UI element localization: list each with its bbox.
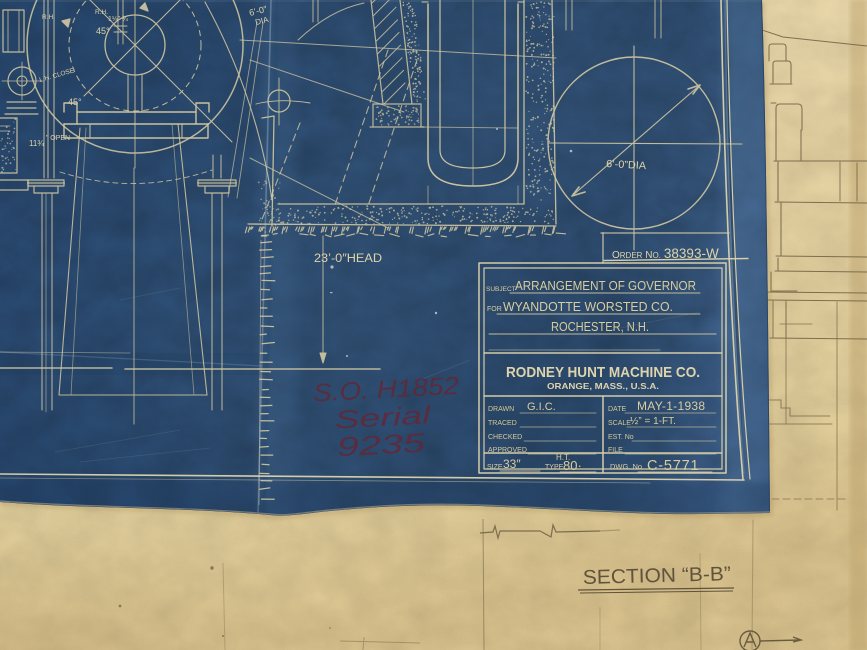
- svg-text:DRAWN: DRAWN: [488, 406, 514, 413]
- svg-text:DWG. No: DWG. No: [610, 462, 642, 471]
- svg-text:80·: 80·: [563, 458, 582, 473]
- svg-text:1⅛” ¾: 1⅛” ¾: [108, 16, 128, 23]
- svg-text:SECTION “B-B”: SECTION “B-B”: [583, 563, 732, 589]
- svg-text:G.I.C.: G.I.C.: [527, 401, 556, 413]
- svg-text:ORANGE, MASS., U.S.A.: ORANGE, MASS., U.S.A.: [547, 381, 659, 391]
- svg-text:45°: 45°: [68, 97, 82, 107]
- svg-text:ROCHESTER, N.H.: ROCHESTER, N.H.: [551, 319, 649, 334]
- svg-text:EST. No: EST. No: [608, 434, 634, 441]
- svg-text:SIZE: SIZE: [487, 464, 503, 471]
- svg-text:½” = 1-FT.: ½” = 1-FT.: [630, 416, 676, 427]
- svg-text:RODNEY HUNT MACHINE CO.: RODNEY HUNT MACHINE CO.: [506, 364, 700, 381]
- svg-text:ARRANGEMENT OF GOVERNOR: ARRANGEMENT OF GOVERNOR: [515, 279, 696, 293]
- svg-text:9235: 9235: [336, 428, 427, 463]
- svg-text:11¾: 11¾: [29, 139, 44, 148]
- svg-text:23’-0″HEAD: 23’-0″HEAD: [314, 253, 382, 265]
- svg-text:TYPE: TYPE: [545, 464, 564, 471]
- svg-text:FOR: FOR: [487, 306, 502, 313]
- svg-text:SCALE: SCALE: [608, 420, 631, 427]
- svg-text:R.H.: R.H.: [95, 9, 108, 16]
- svg-text:APPROVED: APPROVED: [488, 447, 527, 454]
- svg-text:” OPEN: ” OPEN: [46, 135, 70, 142]
- svg-text:33″: 33″: [503, 457, 521, 471]
- svg-text:CHECKED: CHECKED: [488, 434, 522, 441]
- svg-text:SUBJECT: SUBJECT: [486, 286, 516, 293]
- svg-text:TRACED: TRACED: [488, 420, 517, 427]
- svg-text:DATE: DATE: [608, 406, 626, 413]
- svg-text:6’-0”DIA: 6’-0”DIA: [606, 158, 647, 172]
- svg-text:MAY-1-1938: MAY-1-1938: [637, 399, 705, 413]
- svg-text:WYANDOTTE WORSTED CO.: WYANDOTTE WORSTED CO.: [503, 300, 673, 314]
- svg-text:FILE: FILE: [608, 447, 623, 454]
- svg-text:45°: 45°: [96, 26, 110, 36]
- svg-text:R.H.: R.H.: [42, 14, 55, 21]
